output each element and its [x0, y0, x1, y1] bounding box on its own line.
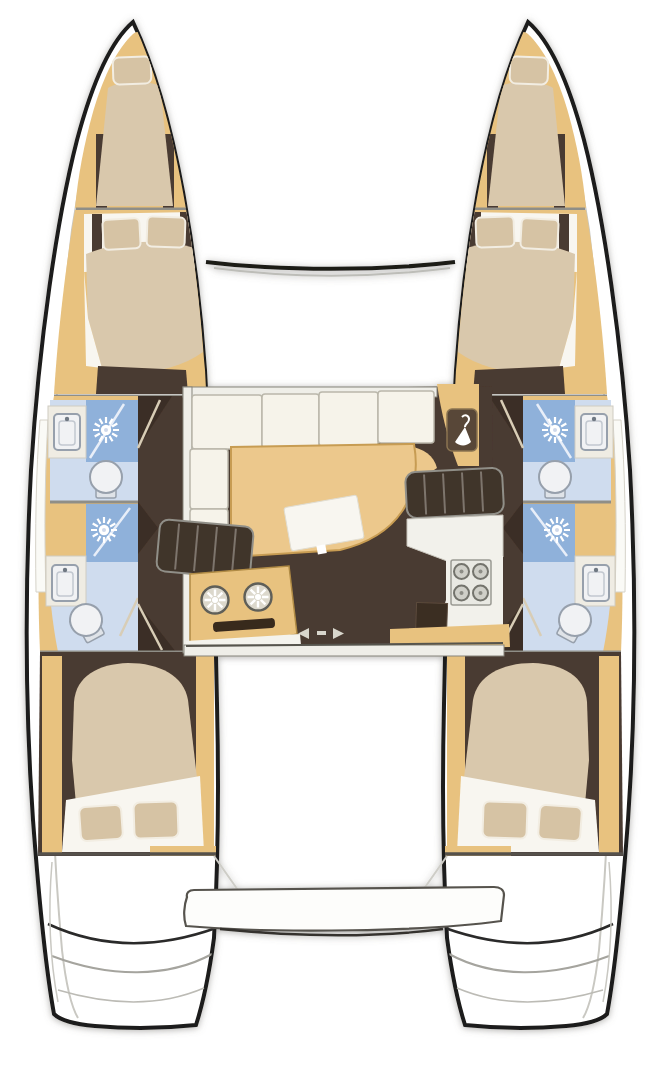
- forward-crossbeam: [206, 262, 455, 276]
- settee-cushion: [378, 391, 434, 443]
- saloon-aft-wall: [184, 645, 504, 656]
- starboard-companionway-stairs: [405, 467, 504, 518]
- settee-cushion: [190, 449, 228, 509]
- settee-cushion: [262, 394, 319, 448]
- crossbeam-bar: [206, 262, 455, 269]
- settee-cushion: [319, 392, 378, 446]
- settee-cushion: [192, 395, 262, 449]
- stove: [451, 560, 491, 605]
- platform-bench: [184, 887, 504, 931]
- catamaran-floor-plan: [0, 0, 661, 1080]
- galley-sink-unit: [186, 566, 302, 656]
- saloon: [156, 384, 510, 656]
- floor-hatch: [316, 544, 326, 554]
